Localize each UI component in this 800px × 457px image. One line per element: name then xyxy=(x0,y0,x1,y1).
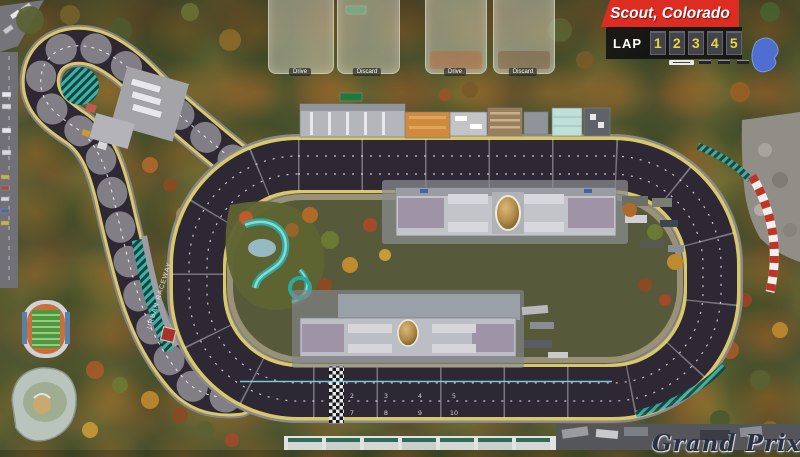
lap-box-4[interactable]: 4 xyxy=(707,31,724,55)
track-billboard xyxy=(160,327,176,343)
lap-box-3[interactable]: 3 xyxy=(688,31,705,55)
gold-dome-lower xyxy=(398,320,418,346)
lap-marks xyxy=(606,59,742,67)
raceway-map: URBAN RACEWAY 2 3 4 5 7 8 9 10 xyxy=(0,0,800,450)
location-banner: Scout, Colorado xyxy=(601,0,739,27)
card-zone-discard-1[interactable] xyxy=(337,0,400,74)
card-zone-discard-2[interactable] xyxy=(493,0,555,74)
start-finish-line xyxy=(329,366,344,424)
card-zone-label: Drive xyxy=(289,68,311,76)
card-art xyxy=(430,51,482,69)
lap-box-2[interactable]: 2 xyxy=(669,31,686,55)
lap-label: LAP xyxy=(613,36,642,51)
card-zone-drive-2[interactable] xyxy=(425,0,487,74)
lap-tick xyxy=(718,60,730,64)
card-zone-drive-1[interactable] xyxy=(268,0,334,74)
baseball-stadium xyxy=(12,368,76,441)
card-zone-label: Discard xyxy=(509,68,537,76)
pond xyxy=(752,38,778,72)
card-zone-label: Discard xyxy=(353,68,381,76)
card-art xyxy=(498,51,550,69)
lap-counter: LAP 1 2 3 4 5 xyxy=(606,27,742,59)
svg-text:10: 10 xyxy=(450,409,458,417)
lap-box-1[interactable]: 1 xyxy=(650,31,667,55)
card-zone-label: Drive xyxy=(444,68,466,76)
lap-tick xyxy=(699,60,711,64)
lap-tick xyxy=(737,60,749,64)
grandstand-upper xyxy=(382,180,628,244)
pit-sign xyxy=(340,93,362,101)
svg-text:3: 3 xyxy=(384,392,388,400)
hairpin-runoff xyxy=(61,67,99,105)
svg-text:2: 2 xyxy=(350,392,354,400)
game-title: Grand Prix xyxy=(652,430,800,457)
svg-text:5: 5 xyxy=(452,392,456,400)
gold-dome-upper xyxy=(496,196,520,230)
svg-text:7: 7 xyxy=(350,409,354,417)
svg-text:4: 4 xyxy=(418,392,422,400)
location-name: Scout, Colorado xyxy=(610,5,730,23)
lap-box-5[interactable]: 5 xyxy=(726,31,743,55)
svg-text:9: 9 xyxy=(418,409,422,417)
lap-marker-pill xyxy=(669,60,694,65)
football-stadium xyxy=(22,300,70,358)
svg-text:8: 8 xyxy=(384,409,388,417)
